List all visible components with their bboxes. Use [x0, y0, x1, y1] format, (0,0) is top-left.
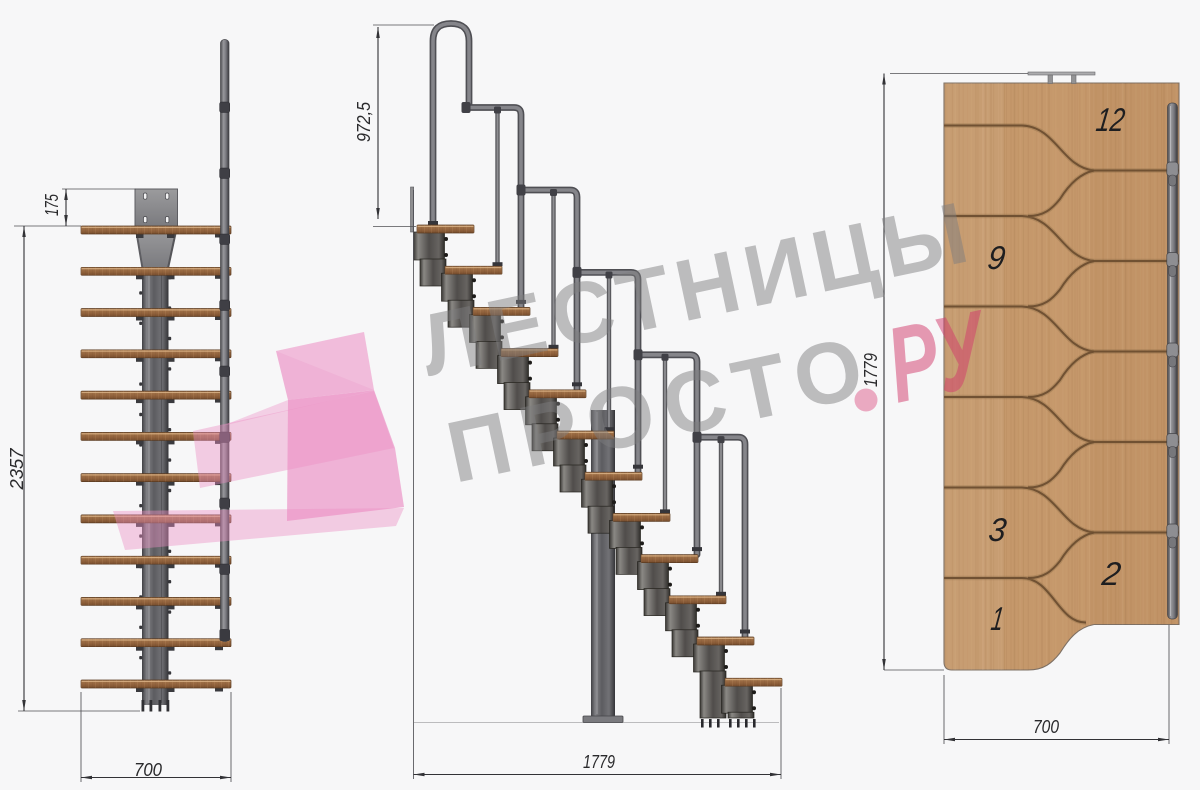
svg-text:12: 12	[1094, 102, 1127, 139]
svg-text:700: 700	[134, 760, 162, 780]
svg-text:1779: 1779	[583, 752, 615, 772]
svg-text:2357: 2357	[7, 447, 27, 490]
svg-text:700: 700	[1033, 717, 1059, 737]
svg-text:175: 175	[42, 193, 62, 216]
svg-text:972,5: 972,5	[354, 101, 374, 142]
